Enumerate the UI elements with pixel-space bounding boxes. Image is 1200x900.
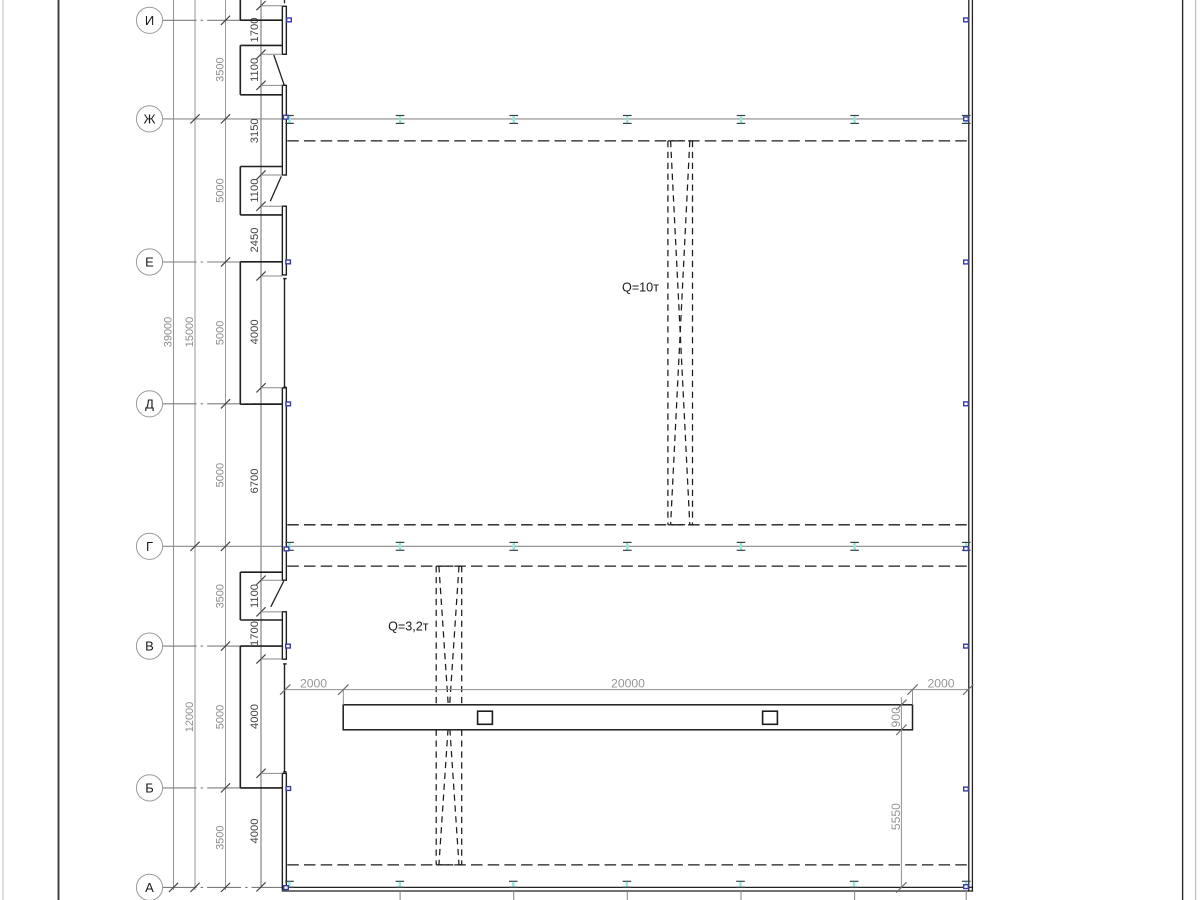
- svg-text:20000: 20000: [611, 677, 645, 691]
- svg-text:3150: 3150: [249, 118, 261, 143]
- svg-text:Q=3,2т: Q=3,2т: [388, 619, 429, 633]
- svg-text:5000: 5000: [214, 321, 226, 345]
- svg-text:Г: Г: [146, 539, 153, 554]
- svg-text:1700: 1700: [249, 621, 261, 646]
- svg-text:900: 900: [889, 707, 903, 728]
- svg-text:4000: 4000: [249, 704, 261, 729]
- svg-text:1100: 1100: [249, 584, 261, 608]
- svg-text:4000: 4000: [249, 319, 261, 344]
- svg-text:2000: 2000: [927, 677, 954, 691]
- svg-text:12000: 12000: [184, 702, 196, 733]
- svg-text:5550: 5550: [889, 803, 903, 830]
- svg-text:1100: 1100: [249, 179, 261, 203]
- svg-text:5000: 5000: [214, 705, 226, 729]
- svg-text:3500: 3500: [214, 825, 226, 849]
- svg-text:1700: 1700: [249, 18, 261, 43]
- svg-text:Q=10т: Q=10т: [622, 281, 659, 295]
- svg-text:Е: Е: [145, 255, 154, 270]
- svg-text:15000: 15000: [184, 317, 196, 348]
- svg-text:3500: 3500: [214, 57, 226, 81]
- svg-text:2000: 2000: [300, 677, 327, 691]
- svg-text:3500: 3500: [214, 584, 226, 608]
- svg-text:2450: 2450: [249, 228, 261, 253]
- svg-text:В: В: [145, 639, 154, 654]
- svg-text:5000: 5000: [214, 178, 226, 202]
- svg-text:Д: Д: [145, 396, 154, 411]
- svg-text:39000: 39000: [162, 317, 174, 348]
- svg-text:А: А: [145, 880, 154, 895]
- svg-text:4000: 4000: [249, 819, 261, 844]
- svg-text:И: И: [145, 13, 154, 28]
- svg-text:5000: 5000: [214, 463, 226, 487]
- svg-text:1100: 1100: [249, 58, 261, 82]
- svg-text:Ж: Ж: [143, 112, 155, 127]
- svg-text:6700: 6700: [249, 469, 261, 494]
- svg-text:Б: Б: [145, 781, 154, 796]
